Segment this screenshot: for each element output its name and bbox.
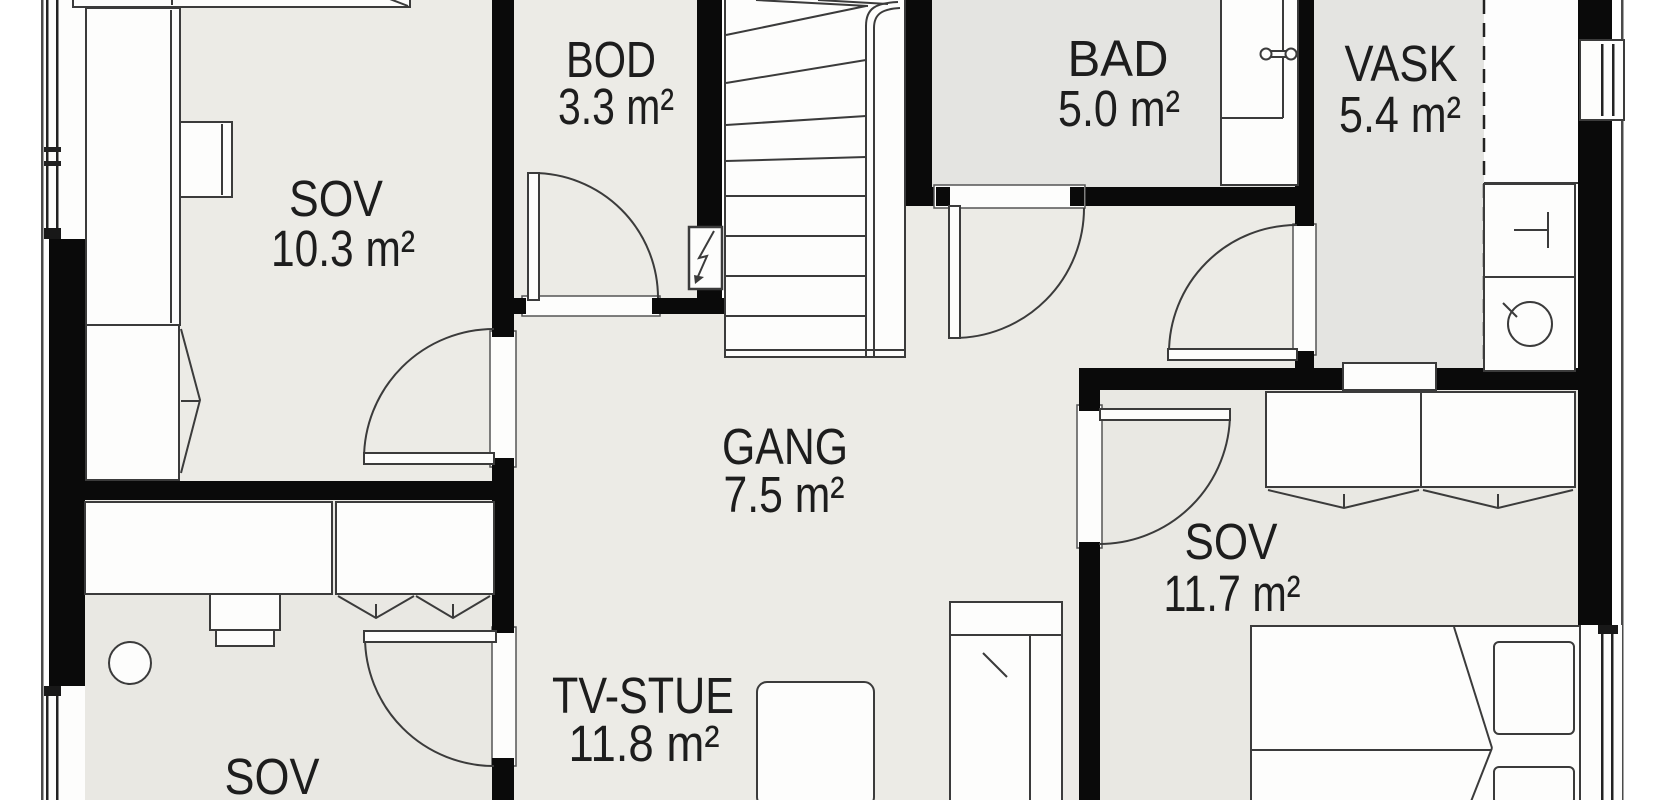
svg-text:5.4 m²: 5.4 m² (1339, 86, 1461, 143)
svg-text:3.3 m²: 3.3 m² (558, 78, 674, 135)
svg-text:SOV: SOV (225, 748, 320, 800)
svg-text:7.5 m²: 7.5 m² (724, 466, 845, 523)
svg-text:BAD: BAD (1068, 30, 1169, 87)
svg-text:SOV: SOV (1185, 513, 1278, 570)
svg-text:VASK: VASK (1345, 35, 1458, 92)
svg-text:SOV: SOV (289, 170, 383, 227)
svg-text:11.7 m²: 11.7 m² (1164, 565, 1301, 622)
svg-text:10.3 m²: 10.3 m² (271, 220, 415, 277)
svg-text:5.0 m²: 5.0 m² (1058, 80, 1180, 137)
svg-text:11.8 m²: 11.8 m² (569, 715, 720, 772)
